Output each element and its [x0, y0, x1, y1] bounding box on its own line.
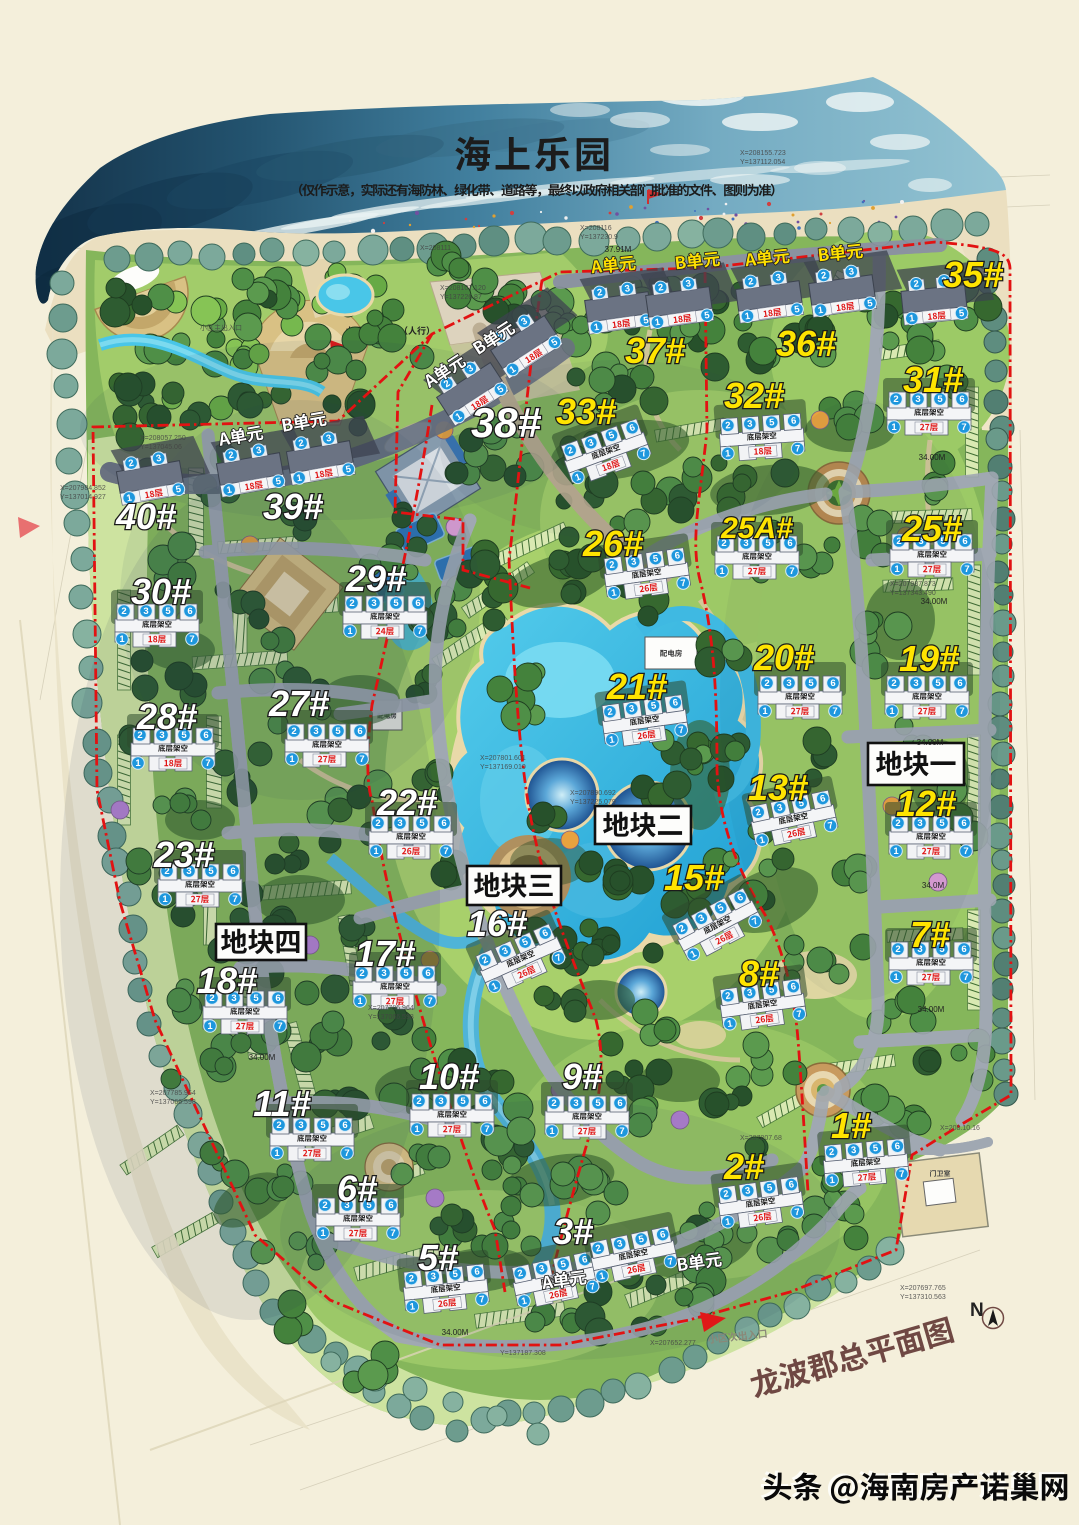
svg-text:31#: 31# [903, 359, 963, 400]
svg-text:N: N [970, 1300, 984, 1321]
svg-text:3: 3 [786, 678, 791, 689]
svg-text:1: 1 [762, 706, 768, 717]
svg-text:1: 1 [893, 972, 899, 983]
svg-text:39#: 39# [263, 486, 323, 527]
svg-text:1: 1 [414, 1124, 420, 1135]
svg-text:3: 3 [438, 1096, 443, 1107]
svg-text:7#: 7# [910, 914, 950, 955]
svg-text:7: 7 [961, 422, 966, 433]
svg-text:Y=137045.06: Y=137045.06 [140, 444, 182, 451]
svg-text:Y=137343.490: Y=137343.490 [890, 590, 936, 597]
svg-text:7: 7 [427, 996, 432, 1007]
svg-text:33#: 33# [556, 391, 616, 432]
svg-text:13#: 13# [748, 767, 808, 808]
svg-text:Y=137066.598: Y=137066.598 [368, 1014, 414, 1021]
svg-text:6: 6 [830, 678, 835, 689]
svg-text:34.00M: 34.00M [921, 597, 948, 606]
svg-text:1: 1 [549, 1126, 555, 1137]
svg-text:2: 2 [895, 944, 900, 955]
svg-text:3: 3 [313, 726, 318, 737]
svg-text:3: 3 [850, 1145, 856, 1156]
svg-text:X=207984.852: X=207984.852 [60, 485, 106, 492]
svg-text:X=207801.601: X=207801.601 [480, 755, 526, 762]
svg-text:6: 6 [961, 944, 966, 955]
svg-text:5: 5 [935, 678, 941, 689]
svg-text:1: 1 [373, 846, 379, 857]
svg-text:5: 5 [393, 598, 399, 609]
svg-text:9#: 9# [562, 1056, 602, 1097]
svg-text:7: 7 [205, 758, 210, 769]
svg-text:6: 6 [275, 993, 280, 1004]
svg-text:6: 6 [474, 1266, 480, 1277]
svg-text:36#: 36# [776, 323, 836, 364]
svg-text:6: 6 [957, 678, 962, 689]
svg-text:2: 2 [416, 1096, 421, 1107]
svg-text:5: 5 [320, 1120, 326, 1131]
svg-text:26#: 26# [582, 523, 643, 564]
svg-text:2: 2 [121, 606, 126, 617]
svg-text:6: 6 [894, 1141, 900, 1152]
svg-text:1: 1 [719, 566, 725, 577]
svg-text:X=207785.964: X=207785.964 [150, 1090, 196, 1097]
svg-text:10#: 10# [419, 1056, 479, 1097]
svg-text:Y=137187.308: Y=137187.308 [500, 1350, 546, 1357]
svg-text:7: 7 [959, 706, 964, 717]
svg-text:2: 2 [349, 598, 354, 609]
svg-text:1: 1 [320, 1228, 326, 1239]
svg-text:34.0M: 34.0M [922, 881, 945, 890]
svg-text:34.00M: 34.00M [917, 738, 944, 747]
svg-text:34.00M: 34.00M [442, 1328, 469, 1337]
svg-text:Y=137066.598: Y=137066.598 [150, 1099, 196, 1106]
svg-text:5#: 5# [418, 1237, 458, 1278]
svg-text:X=207652.277: X=207652.277 [650, 1340, 696, 1347]
svg-text:6: 6 [230, 866, 235, 877]
svg-text:7: 7 [964, 564, 969, 575]
svg-text:7: 7 [443, 846, 448, 857]
svg-text:7: 7 [619, 1126, 624, 1137]
svg-text:7: 7 [390, 1228, 395, 1239]
svg-text:7: 7 [963, 972, 968, 983]
svg-text:2: 2 [891, 678, 896, 689]
svg-text:6: 6 [617, 1098, 622, 1109]
svg-text:X=207697.765: X=207697.765 [900, 1285, 946, 1292]
svg-text:38#: 38# [471, 399, 542, 446]
svg-text:34.00M: 34.00M [919, 453, 946, 462]
svg-text:1: 1 [162, 894, 168, 905]
svg-text:3: 3 [747, 419, 753, 430]
svg-text:2: 2 [893, 394, 898, 405]
svg-text:25A#: 25A# [720, 512, 793, 545]
svg-text:Y=137310.563: Y=137310.563 [900, 1294, 946, 1301]
svg-text:6: 6 [357, 726, 362, 737]
svg-text:2: 2 [725, 420, 731, 431]
svg-text:32#: 32# [724, 375, 784, 416]
svg-text:21#: 21# [606, 666, 667, 707]
svg-text:3: 3 [913, 678, 918, 689]
svg-text:6: 6 [962, 536, 967, 547]
svg-text:1: 1 [891, 422, 897, 433]
svg-text:8#: 8# [739, 953, 779, 994]
svg-text:5: 5 [595, 1098, 601, 1109]
svg-text:X=207890.692: X=207890.692 [570, 790, 616, 797]
svg-text:2: 2 [322, 1200, 327, 1211]
svg-text:7: 7 [963, 846, 968, 857]
svg-text:6: 6 [425, 968, 430, 979]
svg-text:1: 1 [135, 758, 141, 769]
svg-text:29#: 29# [345, 558, 406, 599]
svg-text:6: 6 [961, 818, 966, 829]
svg-text:Y=137169.010: Y=137169.010 [480, 764, 526, 771]
svg-text:7: 7 [795, 443, 801, 454]
svg-text:15#: 15# [664, 857, 724, 898]
svg-text:X=208057.250: X=208057.250 [140, 435, 186, 442]
svg-text:34.00M: 34.00M [918, 1005, 945, 1014]
svg-text:7: 7 [479, 1294, 485, 1305]
svg-text:7: 7 [484, 1124, 489, 1135]
svg-text:5: 5 [460, 1096, 466, 1107]
svg-text:2: 2 [551, 1098, 556, 1109]
svg-text:22#: 22# [376, 782, 437, 823]
svg-text:1: 1 [894, 564, 900, 575]
svg-text:1#: 1# [831, 1105, 871, 1146]
svg-text:6: 6 [482, 1096, 487, 1107]
svg-text:7: 7 [344, 1148, 349, 1159]
svg-text:X=208107.120: X=208107.120 [440, 285, 486, 292]
svg-text:40#: 40# [115, 496, 176, 537]
svg-text:11#: 11# [253, 1083, 310, 1124]
svg-text:1: 1 [207, 1021, 213, 1032]
svg-text:7: 7 [359, 754, 364, 765]
svg-text:1: 1 [893, 846, 899, 857]
svg-text:X=207807.68: X=207807.68 [740, 1135, 782, 1142]
svg-text:12#: 12# [896, 783, 956, 824]
svg-text:1: 1 [889, 706, 895, 717]
svg-text:Y=137112.054: Y=137112.054 [740, 159, 785, 166]
svg-text:3#: 3# [553, 1211, 593, 1252]
svg-text:37#: 37# [625, 330, 685, 371]
svg-text:7: 7 [232, 894, 237, 905]
svg-text:6: 6 [388, 1200, 393, 1211]
svg-text:5: 5 [335, 726, 341, 737]
svg-text:2: 2 [913, 279, 919, 290]
svg-text:2: 2 [829, 1147, 835, 1158]
svg-text:37.91M: 37.91M [605, 245, 632, 254]
svg-text:1: 1 [289, 754, 295, 765]
svg-text:20#: 20# [753, 637, 814, 678]
svg-text:Y=137014.927: Y=137014.927 [60, 494, 106, 501]
svg-text:2: 2 [291, 726, 296, 737]
svg-text:6: 6 [415, 598, 420, 609]
svg-text:28#: 28# [136, 696, 197, 737]
svg-text:25#: 25# [901, 508, 962, 549]
svg-text:7: 7 [789, 566, 794, 577]
svg-text:19#: 19# [899, 638, 959, 679]
svg-text:6: 6 [791, 416, 797, 427]
svg-text:Y=137226.87: Y=137226.87 [440, 294, 482, 301]
svg-text:7: 7 [832, 706, 837, 717]
svg-text:7: 7 [277, 1021, 282, 1032]
svg-text:X=207987.873: X=207987.873 [890, 581, 936, 588]
svg-text:Y=137225.079: Y=137225.079 [570, 799, 616, 806]
svg-text:1: 1 [357, 996, 363, 1007]
svg-text:17#: 17# [355, 933, 415, 974]
svg-text:6#: 6# [337, 1168, 377, 1209]
svg-text:6: 6 [441, 818, 446, 829]
svg-text:30#: 30# [131, 571, 191, 612]
svg-text:2: 2 [764, 678, 769, 689]
svg-text:X=207785.964: X=207785.964 [368, 1005, 414, 1012]
svg-text:7: 7 [417, 626, 422, 637]
svg-text:34.00M: 34.00M [249, 1053, 276, 1062]
svg-text:23#: 23# [153, 834, 214, 875]
svg-text:35#: 35# [943, 254, 1003, 295]
svg-text:X=208116: X=208116 [580, 225, 612, 232]
svg-text:7: 7 [189, 634, 194, 645]
svg-text:6: 6 [203, 730, 208, 741]
svg-text:16#: 16# [467, 903, 527, 944]
svg-text:3: 3 [371, 598, 376, 609]
svg-text:6: 6 [342, 1120, 347, 1131]
svg-text:小区主出入口: 小区主出入口 [200, 323, 242, 332]
svg-text:2: 2 [408, 1273, 414, 1284]
svg-text:X=208.10.16: X=208.10.16 [940, 1125, 980, 1132]
svg-text:Y=137230.9: Y=137230.9 [580, 234, 618, 241]
svg-text:X=208111: X=208111 [420, 245, 451, 252]
svg-text:2: 2 [896, 536, 901, 547]
svg-text:1: 1 [119, 634, 125, 645]
svg-text:1: 1 [347, 626, 353, 637]
svg-text:1: 1 [274, 1148, 280, 1159]
svg-text:7: 7 [899, 1169, 905, 1180]
svg-text:18#: 18# [197, 960, 257, 1001]
svg-text:27#: 27# [268, 683, 329, 724]
svg-text:5: 5 [808, 678, 814, 689]
svg-text:X=208155.723: X=208155.723 [740, 150, 786, 157]
svg-text:3: 3 [573, 1098, 578, 1109]
svg-text:2#: 2# [723, 1146, 764, 1187]
